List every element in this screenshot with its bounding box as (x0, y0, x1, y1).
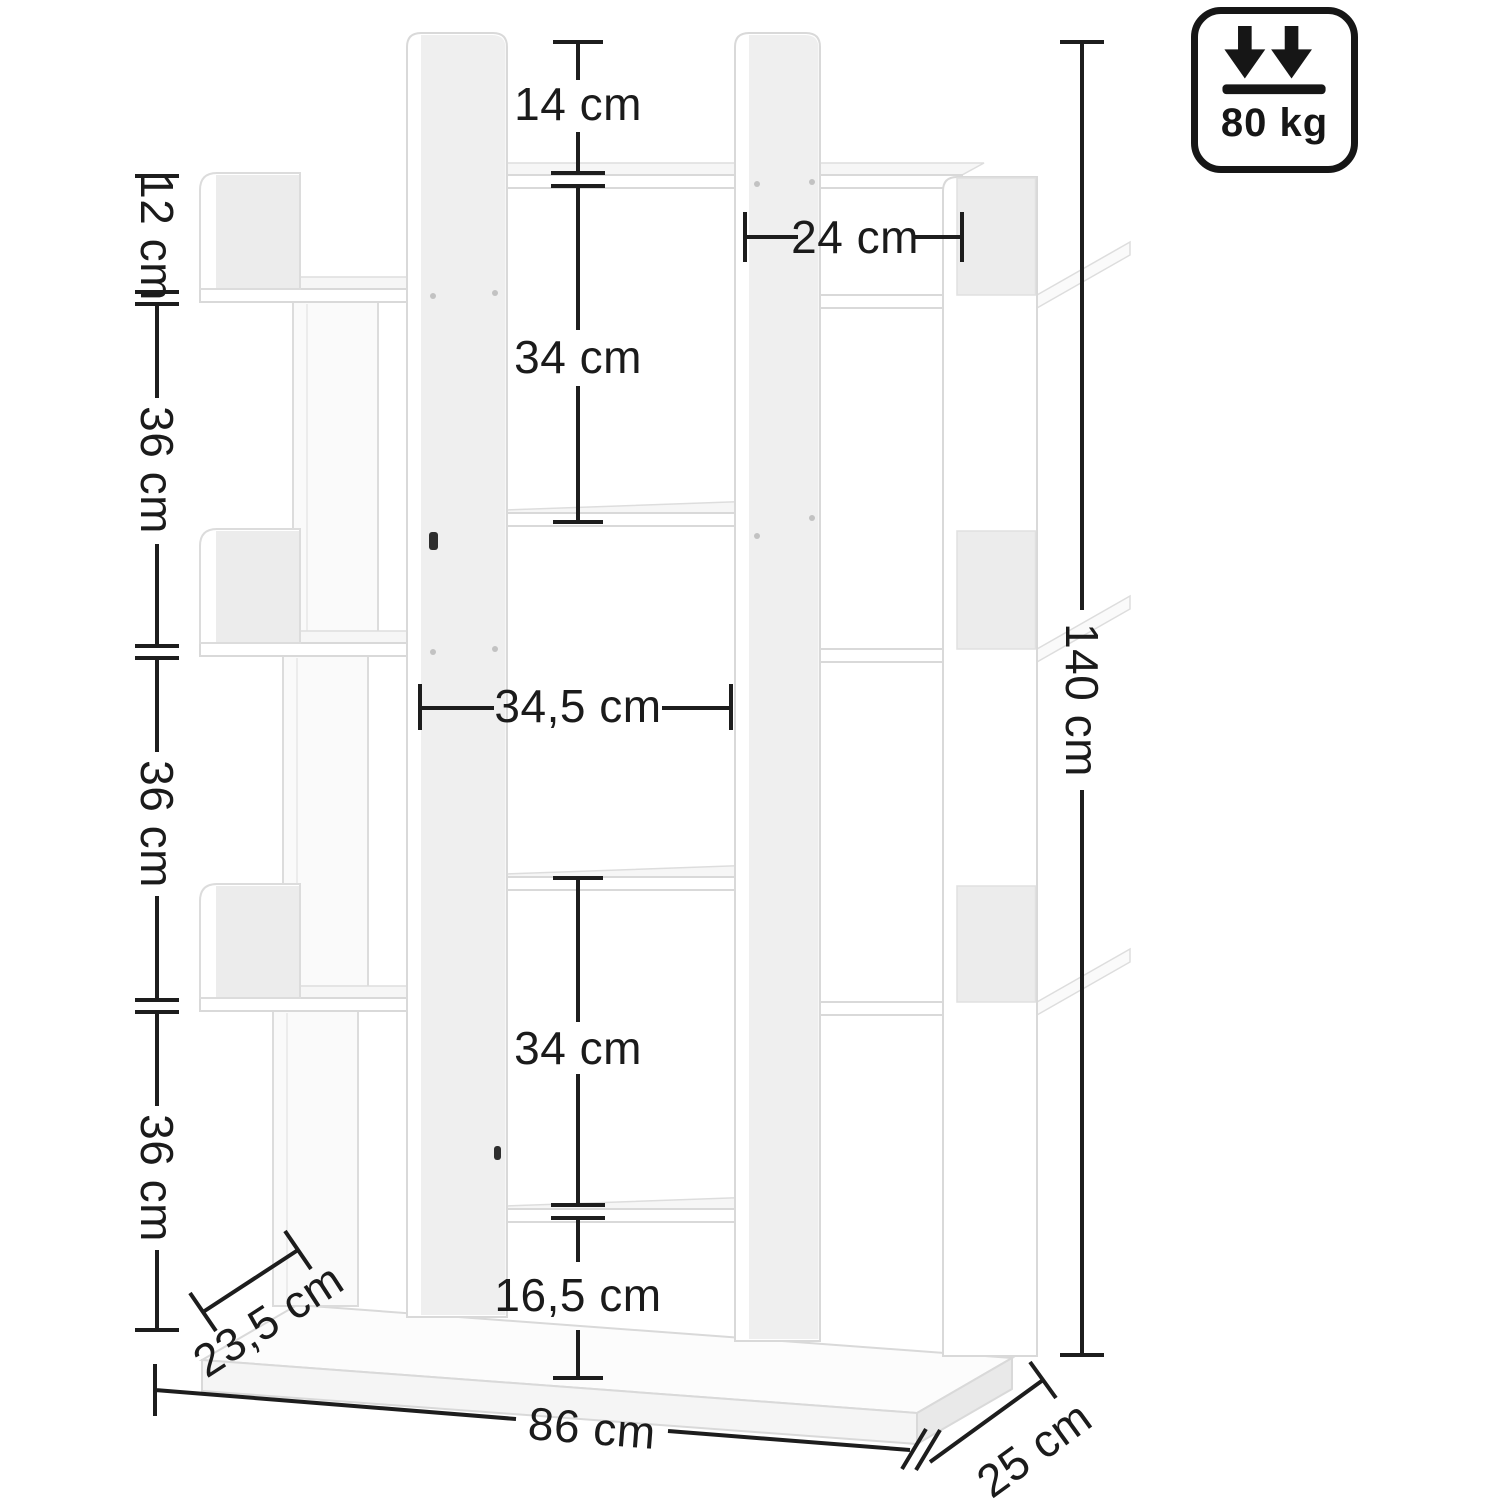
dim-label-center-width: 34,5 cm (494, 679, 661, 733)
dim-label-left-top: 12 cm (130, 173, 184, 301)
dim-label-bottom-opening: 16,5 cm (494, 1268, 661, 1322)
dim-label-center-lower: 34 cm (514, 1021, 642, 1075)
dim-label-width: 86 cm (526, 1396, 658, 1460)
max-load-badge: 80 kg (1191, 7, 1358, 173)
dim-label-top-opening: 14 cm (514, 77, 642, 131)
dim-label-right-opening: 24 cm (791, 210, 919, 264)
max-load-arrows-icon (1221, 26, 1329, 98)
bookshelf-diagram (0, 0, 1500, 1500)
dim-label-center-upper: 34 cm (514, 330, 642, 384)
dim-label-left-upper: 36 cm (130, 406, 184, 534)
dim-label-left-middle: 36 cm (130, 760, 184, 888)
right-side-panel (943, 177, 1037, 1356)
product-dimension-diagram: 14 cm 12 cm 36 cm 36 cm 36 cm 24 cm 34 c… (0, 0, 1500, 1500)
dim-label-left-lower: 36 cm (130, 1114, 184, 1242)
max-load-value: 80 kg (1221, 101, 1328, 146)
dim-label-height: 140 cm (1055, 623, 1109, 777)
left-support-panels (273, 302, 378, 1306)
